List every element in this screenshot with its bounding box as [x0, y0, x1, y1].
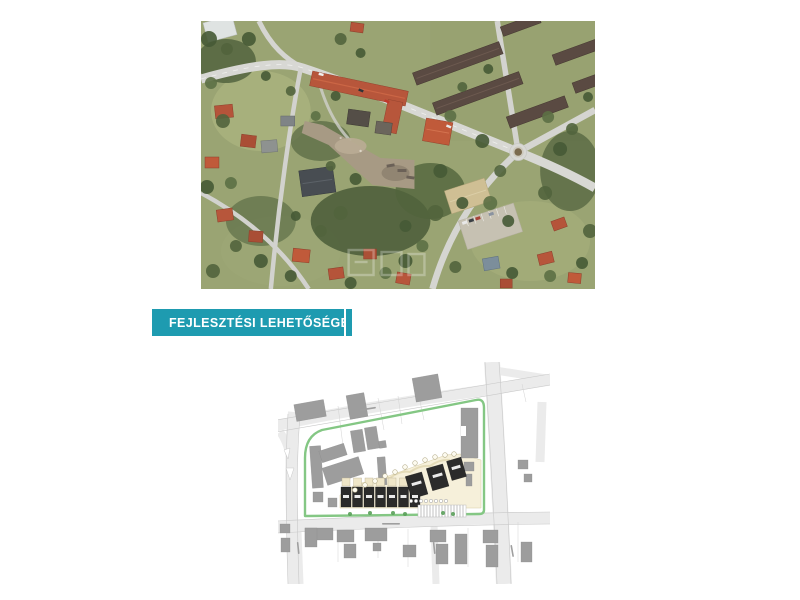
aerial-photo-graphic	[201, 21, 595, 289]
section-banner: FEJLESZTÉSI LEHETŐSÉGEK	[152, 309, 344, 336]
site-plan-figure	[278, 362, 550, 584]
parking-hatch	[418, 505, 466, 517]
section-banner-label: FEJLESZTÉSI LEHETŐSÉGEK	[152, 316, 359, 330]
site-plan-graphic	[278, 362, 550, 584]
building-notch	[461, 426, 466, 436]
roundabout	[510, 144, 527, 161]
document-page: FEJLESZTÉSI LEHETŐSÉGEK	[0, 0, 800, 600]
section-banner-tab	[346, 309, 352, 336]
aerial-photo	[201, 21, 595, 289]
